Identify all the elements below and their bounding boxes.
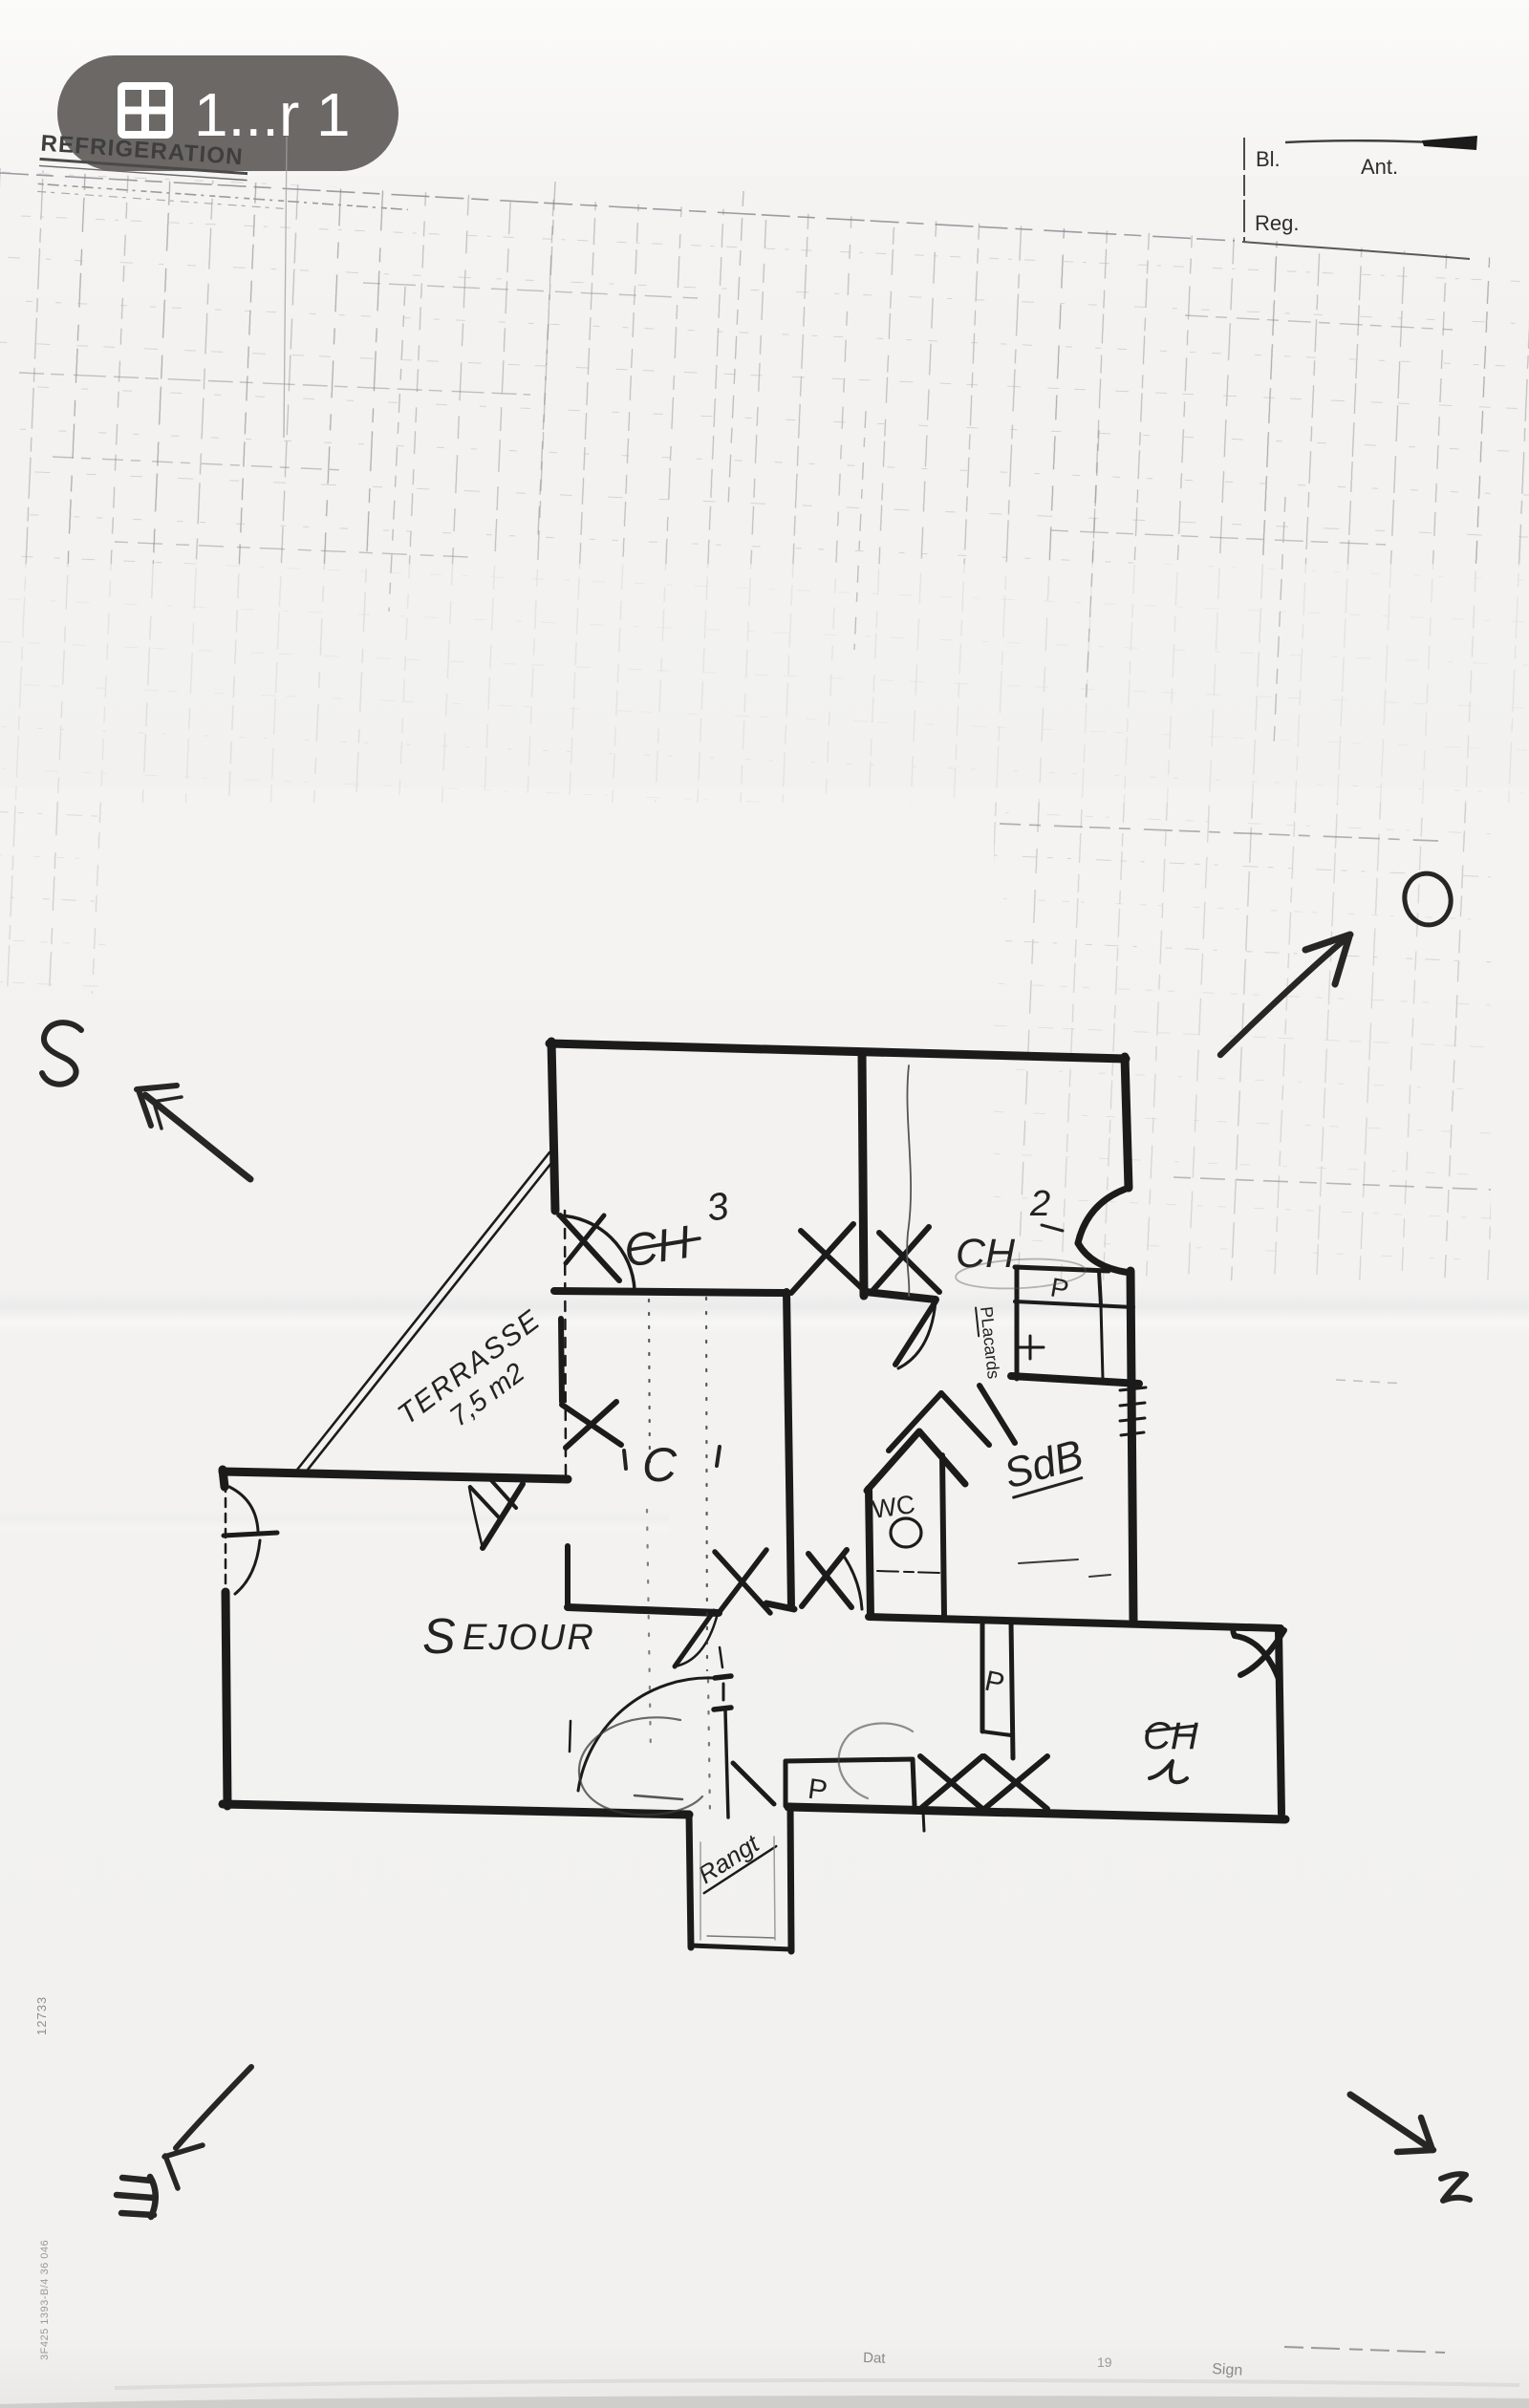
svg-text:Dat: Dat: [863, 2350, 887, 2367]
svg-text:S: S: [422, 1609, 456, 1665]
svg-text:Reg.: Reg.: [1255, 211, 1299, 235]
svg-text:12733: 12733: [34, 1996, 49, 2035]
svg-text:CH: CH: [620, 1217, 694, 1278]
svg-text:Ant.: Ant.: [1361, 155, 1398, 179]
svg-text:C: C: [642, 1438, 678, 1492]
svg-text:19: 19: [1097, 2354, 1112, 2370]
svg-text:EJOUR: EJOUR: [463, 1618, 595, 1658]
svg-text:CH: CH: [1143, 1715, 1198, 1757]
svg-text:2: 2: [1029, 1184, 1050, 1224]
svg-text:3F425 1393-B/4 36 046: 3F425 1393-B/4 36 046: [39, 2240, 51, 2360]
svg-text:Sign: Sign: [1212, 2361, 1243, 2379]
svg-text:1...r 1: 1...r 1: [194, 80, 351, 149]
svg-text:Bl.: Bl.: [1256, 147, 1281, 171]
